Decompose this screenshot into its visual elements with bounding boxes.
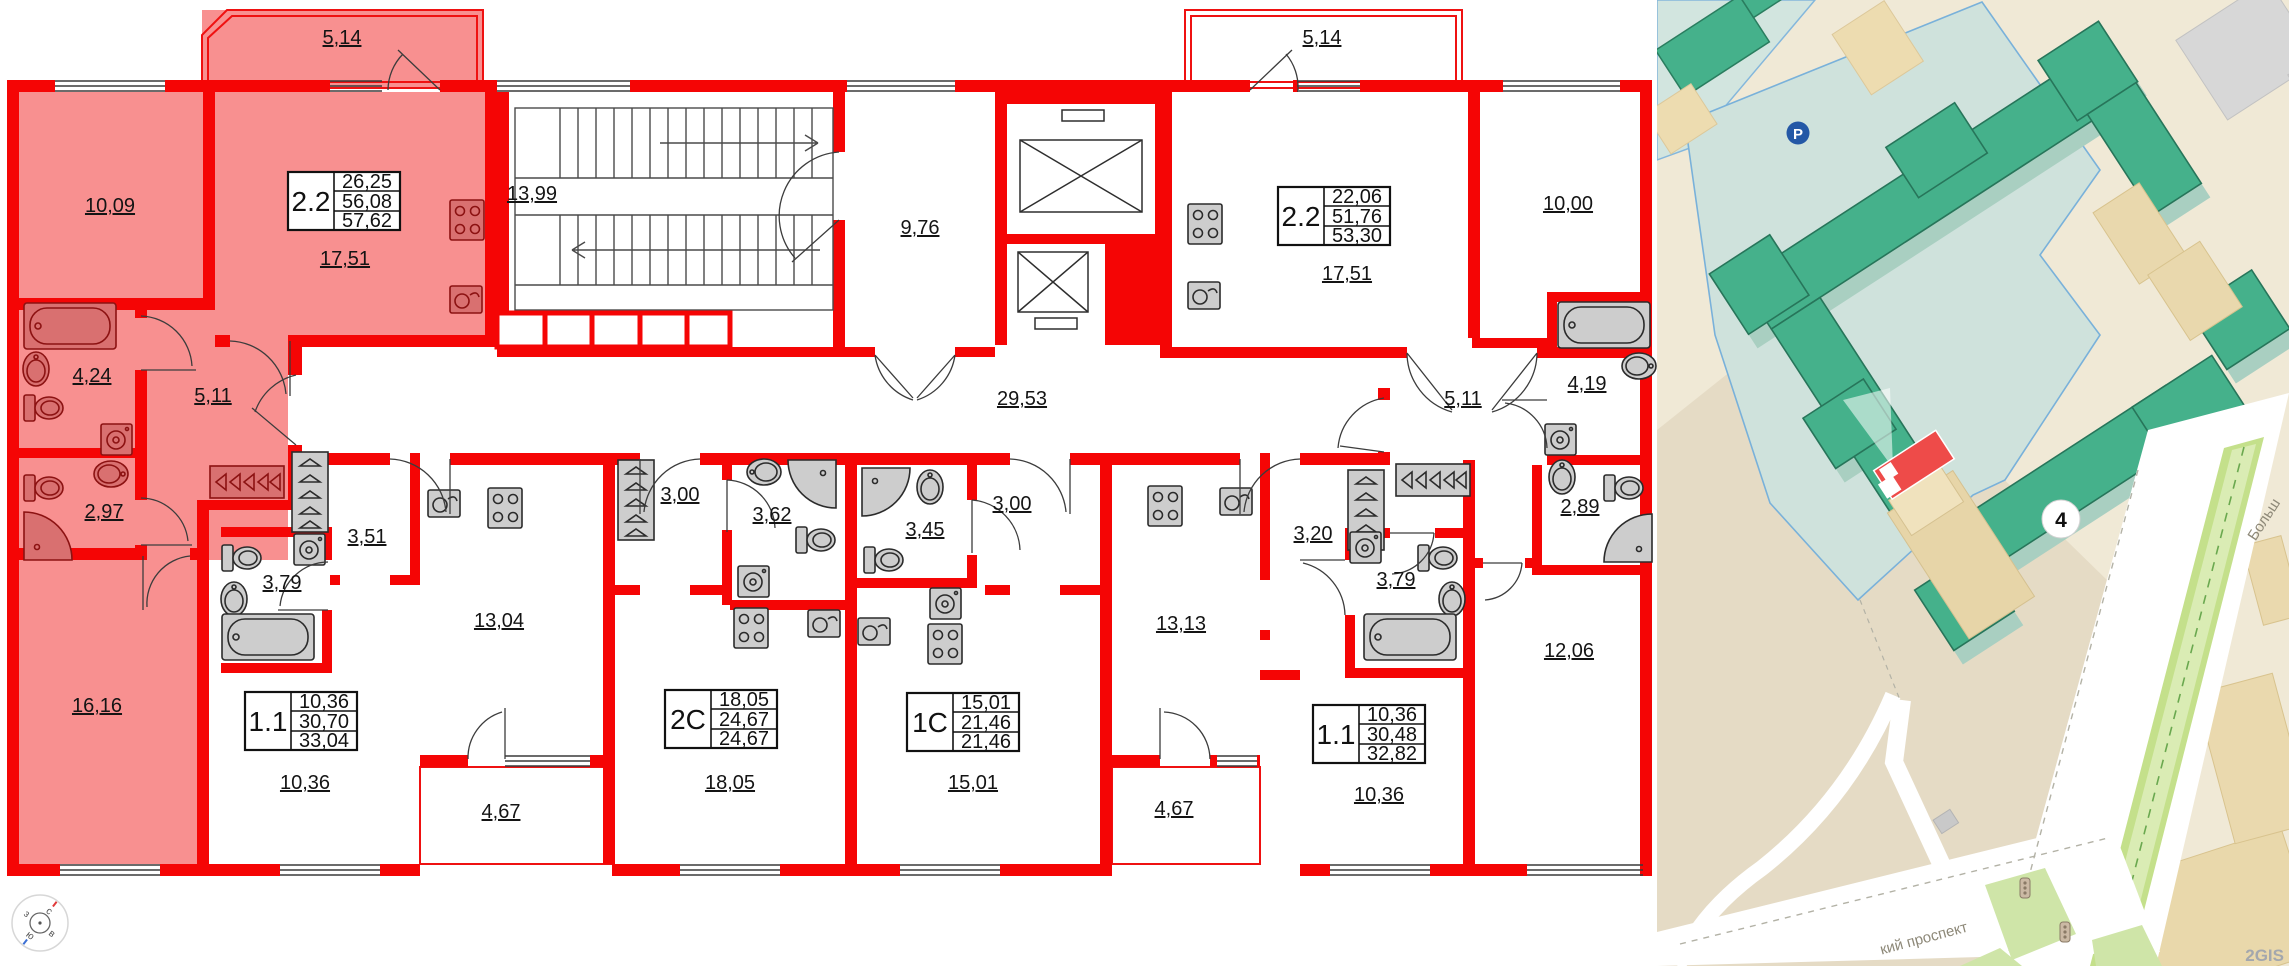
label-living-2s: 18,05 xyxy=(705,772,755,794)
info-box-1.1-left[interactable]: 1.1 10,36 30,70 33,04 xyxy=(245,691,357,752)
svg-text:15,01: 15,01 xyxy=(961,692,1011,714)
svg-text:2.2: 2.2 xyxy=(292,186,331,217)
floor-plan: 5,14 10,09 17,51 4,24 5,11 2,97 16,16 13… xyxy=(0,0,1657,966)
info-box-2s[interactable]: 2С 18,05 24,67 24,67 xyxy=(665,689,777,750)
svg-text:10,36: 10,36 xyxy=(1367,704,1417,726)
label-hall-2s: 3,00 xyxy=(661,484,700,506)
label-living-1s: 15,01 xyxy=(948,772,998,794)
svg-text:22,06: 22,06 xyxy=(1332,186,1382,208)
building-marker-number: 4 xyxy=(2055,509,2067,532)
label-bath-1s: 3,45 xyxy=(906,519,945,541)
svg-text:24,67: 24,67 xyxy=(719,728,769,750)
info-box-1s[interactable]: 1С 15,01 21,46 21,46 xyxy=(907,692,1019,753)
mini-map[interactable]: P 4 Больш кий проспект 2GIS xyxy=(1645,0,2289,966)
label-corridor: 29,53 xyxy=(997,388,1047,410)
building-marker[interactable]: 4 xyxy=(2042,500,2080,538)
svg-text:18,05: 18,05 xyxy=(719,689,769,711)
label-bath-11r: 3,79 xyxy=(1377,569,1416,591)
svg-text:2С: 2С xyxy=(670,704,706,735)
label-room-11l: 10,36 xyxy=(280,772,330,794)
svg-text:26,25: 26,25 xyxy=(342,171,392,193)
label-bedroom-left: 10,09 xyxy=(85,195,135,217)
label-entrance-hall: 9,76 xyxy=(901,217,940,239)
label-balcony-right: 5,14 xyxy=(1303,27,1342,49)
svg-text:21,46: 21,46 xyxy=(961,731,1011,753)
label-wc-right: 2,89 xyxy=(1561,496,1600,518)
parking-icon: P xyxy=(1787,122,1810,145)
svg-text:33,04: 33,04 xyxy=(299,730,349,752)
svg-text:1.1: 1.1 xyxy=(1317,719,1356,750)
scene: 5,14 10,09 17,51 4,24 5,11 2,97 16,16 13… xyxy=(0,0,2289,966)
parking-letter: P xyxy=(1793,126,1803,143)
svg-text:1.1: 1.1 xyxy=(249,706,288,737)
svg-text:10,36: 10,36 xyxy=(299,691,349,713)
svg-text:2.2: 2.2 xyxy=(1282,201,1321,232)
label-kitchen-11r: 13,13 xyxy=(1156,613,1206,635)
label-room-left: 16,16 xyxy=(72,695,122,717)
svg-text:53,30: 53,30 xyxy=(1332,225,1382,247)
label-room-right22: 12,06 xyxy=(1544,640,1594,662)
label-hall-11l: 3,51 xyxy=(348,526,387,548)
label-bath-left: 4,24 xyxy=(73,365,112,387)
label-balcony-11l: 4,67 xyxy=(482,801,521,823)
label-bedroom-right: 10,00 xyxy=(1543,193,1593,215)
info-box-1.1-right[interactable]: 1.1 10,36 30,48 32,82 xyxy=(1313,704,1425,765)
label-bath-11l: 3,79 xyxy=(263,572,302,594)
label-hall-1s: 3,00 xyxy=(993,493,1032,515)
label-room-11r: 10,36 xyxy=(1354,784,1404,806)
label-kitchen-left: 17,51 xyxy=(320,248,370,270)
label-wc-left: 2,97 xyxy=(85,501,124,523)
info-box-2.2-right[interactable]: 2.2 22,06 51,76 53,30 xyxy=(1278,186,1390,247)
svg-text:32,82: 32,82 xyxy=(1367,743,1417,765)
label-balcony-left: 5,14 xyxy=(323,27,362,49)
label-kitchen-11l: 13,04 xyxy=(474,610,524,632)
label-bath-right22: 4,19 xyxy=(1568,373,1607,395)
map-attribution-logo[interactable]: 2GIS xyxy=(2245,946,2284,965)
svg-text:57,62: 57,62 xyxy=(342,210,392,232)
label-bath-2s: 3,62 xyxy=(753,504,792,526)
svg-text:1С: 1С xyxy=(912,707,948,738)
label-hall-left: 5,11 xyxy=(194,385,231,407)
label-hall-right: 5,11 xyxy=(1444,388,1481,410)
info-box-2.2-left[interactable]: 2.2 26,25 56,08 57,62 xyxy=(288,171,400,232)
label-stairwell: 13,99 xyxy=(507,183,557,205)
label-balcony-11r: 4,67 xyxy=(1155,798,1194,820)
label-hall-11r: 3,20 xyxy=(1294,523,1333,545)
label-kitchen-right: 17,51 xyxy=(1322,263,1372,285)
